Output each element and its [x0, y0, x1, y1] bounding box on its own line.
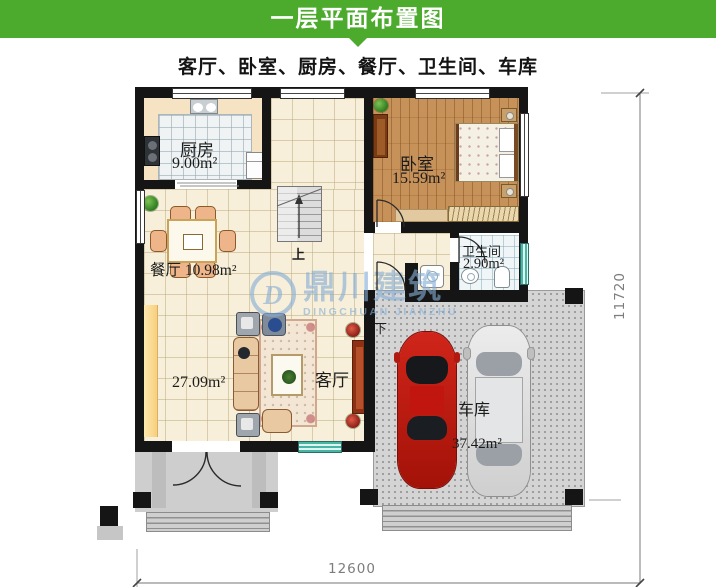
dimension-height: 11720: [612, 272, 628, 320]
dining-area: 10.98m²: [185, 262, 237, 279]
dining-label: 餐厅 10.98m²: [150, 258, 236, 280]
room-list-subtitle: 客厅、卧室、厨房、餐厅、卫生间、车库: [0, 52, 716, 79]
porch-pillar: [100, 506, 118, 526]
window: [298, 441, 342, 453]
bathroom-area: 2.90m²: [463, 256, 504, 273]
window: [415, 88, 490, 99]
low-cabinet-icon: [395, 209, 448, 222]
porch-column: [260, 492, 278, 508]
floor-plan-page: 一层平面布置图 客厅、卧室、厨房、餐厅、卫生间、车库: [0, 0, 716, 587]
living-label: 客厅: [315, 366, 349, 391]
bed-icon: [455, 123, 519, 182]
wall-segment: [401, 222, 528, 233]
red-car-icon: [398, 332, 456, 488]
garage-label: 车库: [458, 396, 490, 420]
kitchen-area: 9.00m²: [172, 155, 217, 173]
wardrobe-icon: [448, 206, 519, 222]
window: [520, 243, 529, 285]
bedroom-area: 15.59m²: [392, 170, 445, 188]
dining-chair: [219, 230, 236, 252]
garage-column: [360, 489, 378, 505]
armchair-icon: [236, 413, 260, 437]
garage-steps: [382, 505, 572, 531]
plant-icon: [143, 196, 158, 211]
bedroom-cabinet-icon: [373, 114, 388, 158]
dining-name: 餐厅: [150, 262, 181, 279]
pillar-base: [97, 526, 123, 540]
plant-icon: [374, 99, 388, 112]
stairs-up-label: 上: [292, 244, 305, 263]
header-banner: 一层平面布置图: [0, 0, 716, 38]
header-pointer-triangle: [349, 38, 367, 47]
stove-icon: [144, 136, 160, 166]
window: [280, 88, 345, 99]
wall-segment: [364, 222, 375, 233]
garage-area: 37.42m²: [452, 436, 502, 453]
nightstand-icon: [501, 184, 517, 198]
side-table-icon: [238, 347, 250, 359]
dining-chair: [150, 230, 167, 252]
loveseat-icon: [262, 409, 292, 433]
watermark-logo-icon: D: [250, 271, 296, 317]
porch-side-left: [152, 452, 166, 508]
watermark: D 鼎川建筑 DINGCHUAN JIANZHU: [250, 271, 458, 318]
steps-down-label: 下: [374, 318, 387, 337]
porch-steps: [146, 512, 270, 532]
bay-window-seat: [144, 305, 158, 437]
porch-column: [133, 492, 151, 508]
garage-column: [565, 288, 583, 304]
window: [520, 113, 529, 197]
garage-column: [565, 489, 583, 505]
watermark-name-en: DINGCHUAN JIANZHU: [303, 306, 458, 318]
nightstand-icon: [501, 108, 517, 122]
coffee-table-icon: [271, 354, 303, 396]
living-area: 27.09m²: [172, 374, 225, 392]
watermark-name-cn: 鼎川建筑: [303, 271, 458, 306]
wall-segment: [450, 290, 528, 302]
page-title: 一层平面布置图: [0, 0, 716, 38]
window: [136, 190, 145, 244]
kitchen-sink-icon: [190, 99, 218, 114]
wall-segment: [135, 180, 175, 189]
wall-segment: [135, 87, 144, 452]
wall-segment: [135, 441, 172, 452]
window: [172, 88, 252, 99]
dining-table-icon: [167, 219, 217, 263]
wall-segment: [364, 87, 373, 233]
staircase: [277, 186, 322, 242]
flower-icon: [346, 414, 360, 428]
wall-segment: [262, 87, 271, 189]
wall-segment: [450, 233, 459, 238]
flower-icon: [346, 323, 360, 337]
dimension-width: 12600: [328, 561, 376, 577]
